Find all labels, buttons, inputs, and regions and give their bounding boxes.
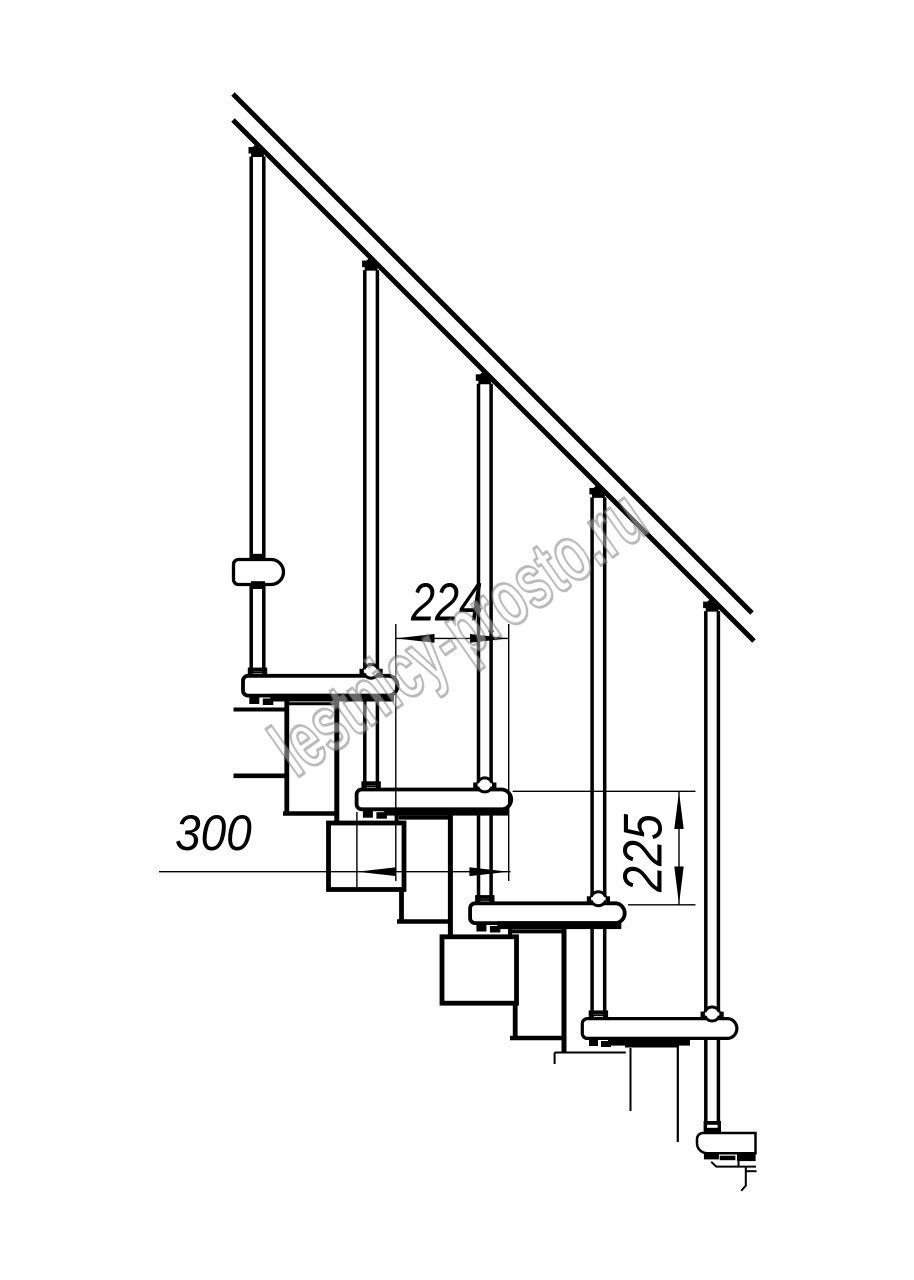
svg-text:300: 300: [175, 806, 252, 861]
svg-text:225: 225: [612, 813, 673, 892]
